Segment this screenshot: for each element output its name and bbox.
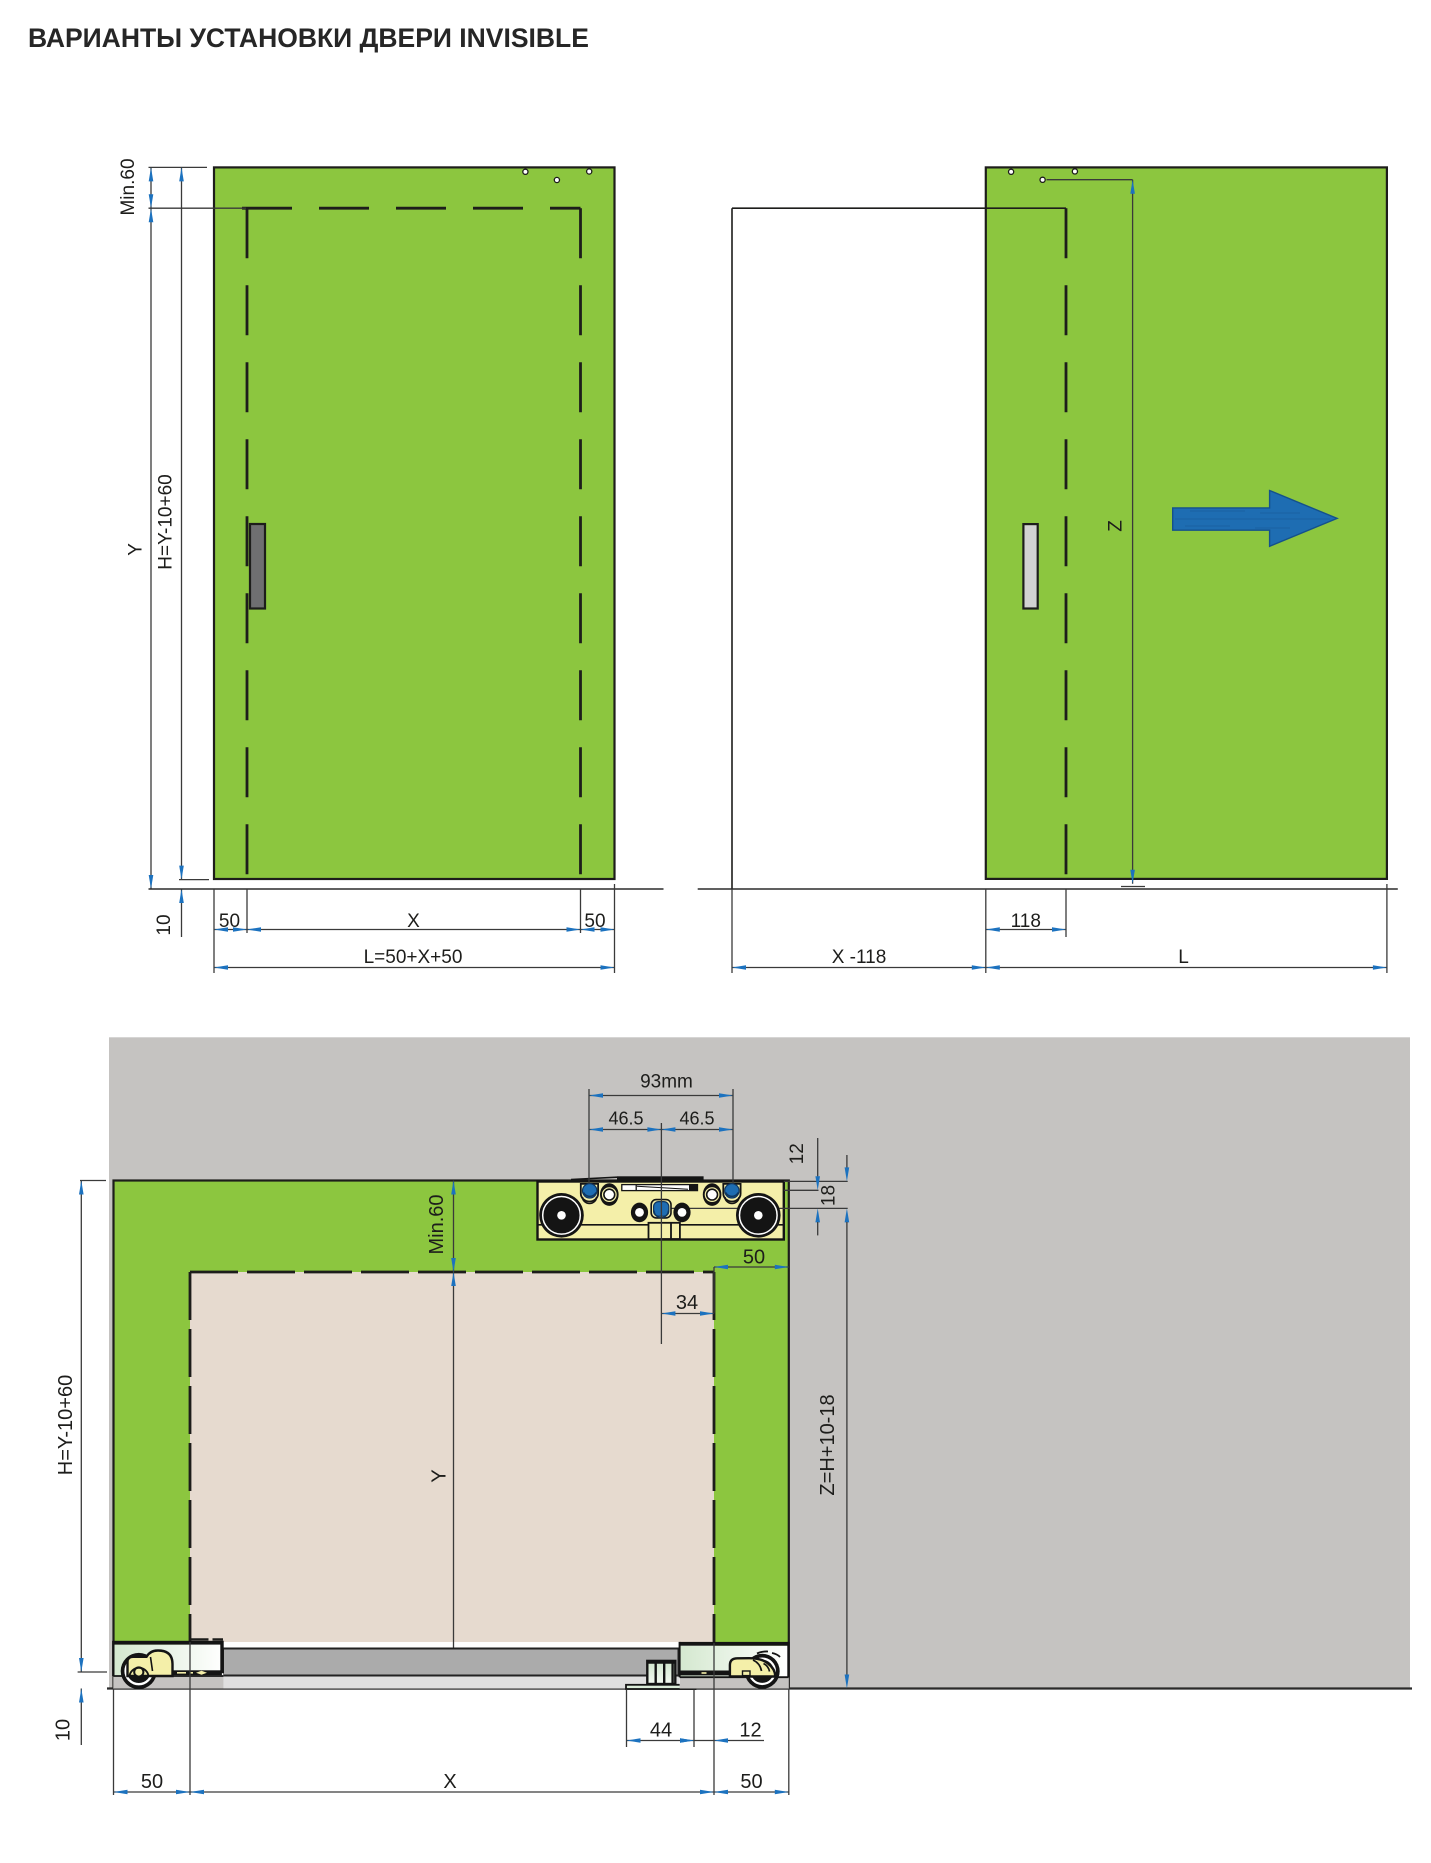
svg-text:118: 118 [1011,911,1041,932]
svg-text:50: 50 [219,911,240,932]
svg-text:Min.60: Min.60 [426,1194,448,1254]
svg-text:Y: Y [126,543,147,556]
svg-text:Z=H+10-18: Z=H+10-18 [817,1394,839,1495]
svg-text:50: 50 [141,1771,163,1793]
svg-text:Y: Y [429,1469,451,1482]
svg-text:50: 50 [584,911,605,932]
svg-text:10: 10 [53,1719,75,1741]
svg-text:46.5: 46.5 [608,1109,643,1129]
svg-text:46.5: 46.5 [679,1109,714,1129]
svg-text:ВАРИАНТЫ УСТАНОВКИ ДВЕРИ INVIS: ВАРИАНТЫ УСТАНОВКИ ДВЕРИ INVISIBLE [28,23,589,53]
svg-text:12: 12 [739,1720,761,1742]
svg-text:X: X [443,1771,456,1793]
svg-text:L: L [1178,947,1189,968]
svg-text:Min.60: Min.60 [118,158,139,215]
svg-text:34: 34 [676,1292,698,1314]
svg-text:12: 12 [787,1143,808,1164]
svg-text:Z: Z [1106,520,1127,532]
svg-text:10: 10 [154,914,175,935]
svg-text:93mm: 93mm [640,1072,693,1093]
svg-text:H=Y-10+60: H=Y-10+60 [156,474,177,569]
svg-text:50: 50 [743,1247,765,1269]
svg-text:X -118: X -118 [832,947,887,968]
svg-text:18: 18 [819,1185,840,1206]
svg-text:L=50+X+50: L=50+X+50 [364,947,463,968]
svg-text:50: 50 [740,1771,762,1793]
svg-text:44: 44 [650,1720,672,1742]
svg-text:X: X [407,911,420,932]
svg-text:H=Y-10+60: H=Y-10+60 [55,1375,77,1475]
